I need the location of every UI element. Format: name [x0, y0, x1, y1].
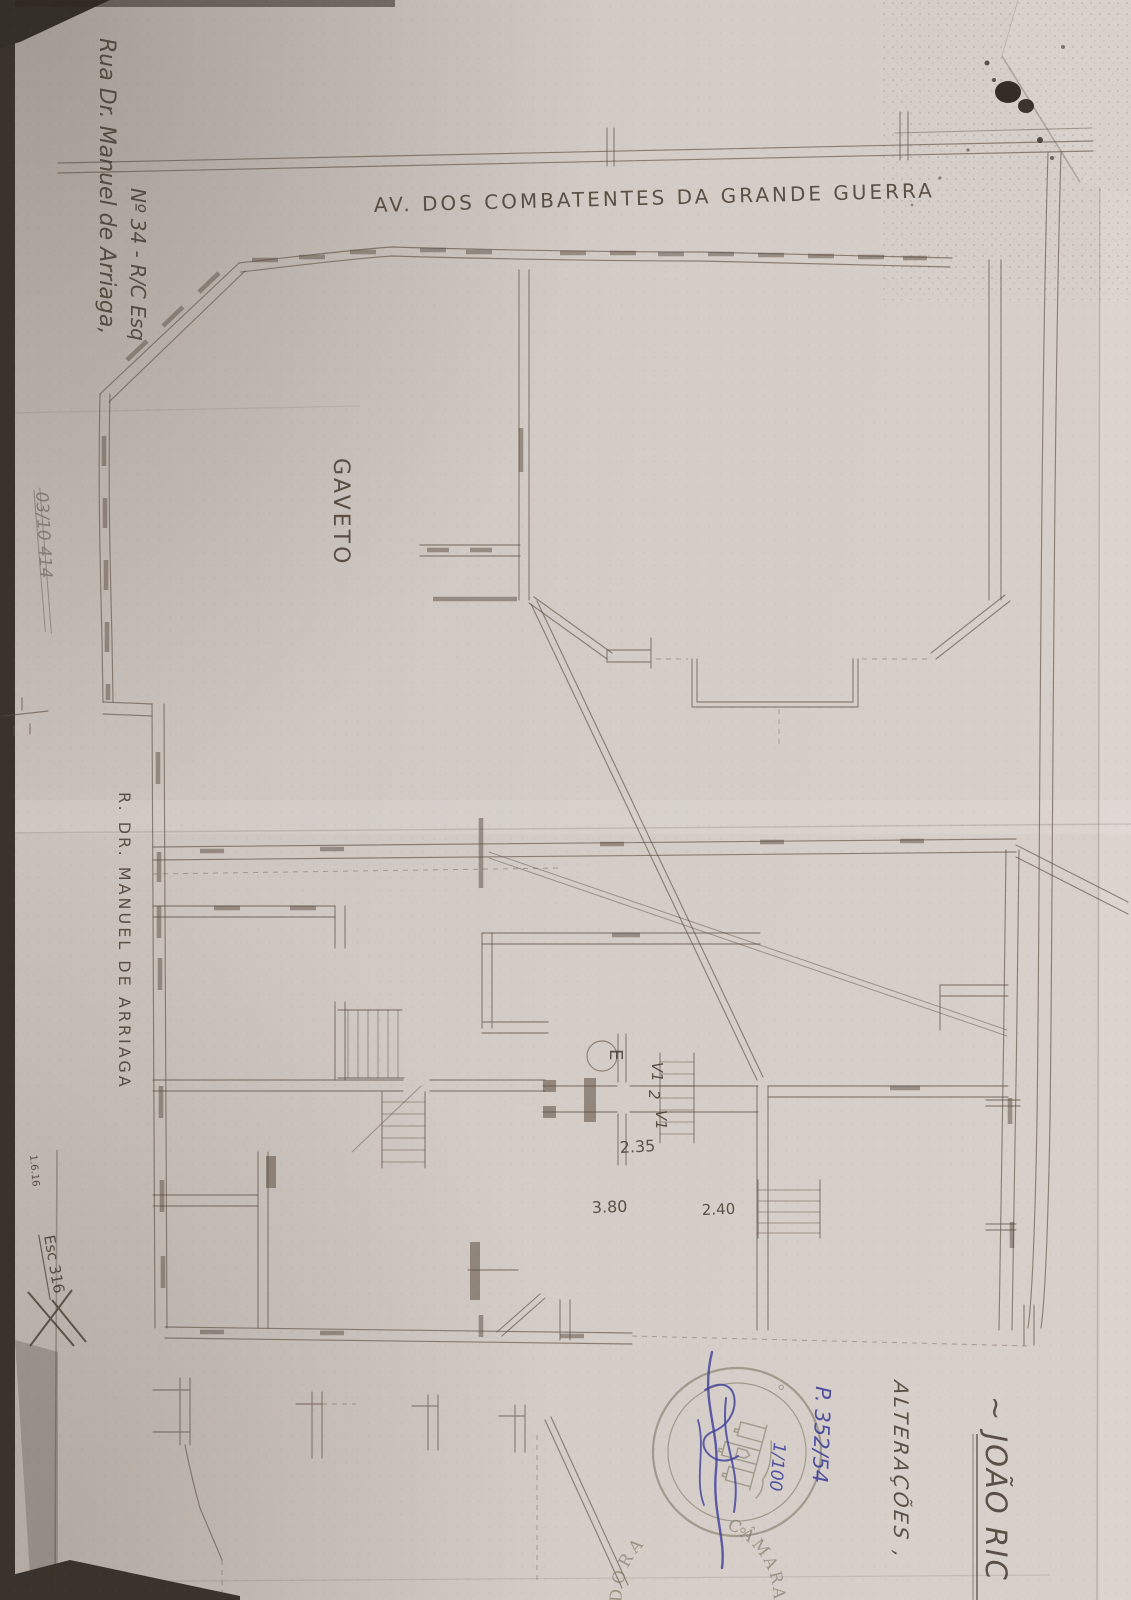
address-line-1: Rua Dr. Manuel de Arriaga, — [94, 38, 119, 334]
scale-note-blue: 1/100 — [765, 1442, 789, 1493]
label-v1-bottom: V1 — [652, 1110, 670, 1130]
paper — [0, 0, 1131, 1600]
gaveto-label: GAVETO — [328, 458, 353, 566]
scanned-plan-page: Rua Dr. Manuel de Arriaga, Nº 34 - R/C E… — [0, 0, 1131, 1600]
folded-corner — [880, 0, 1131, 300]
street-label: R. DR. MANUEL DE ARRIAGA — [115, 792, 134, 1090]
dimension-3-80: 3.80 — [591, 1197, 627, 1217]
label-mid: 2 — [645, 1090, 663, 1100]
label-entry: E — [605, 1049, 626, 1060]
svg-text:~ JOÃO RIC: ~ JOÃO RIC — [979, 1396, 1013, 1582]
address-line-2: Nº 34 - R/C Esq — [126, 188, 150, 341]
label-v1-top: V1 — [648, 1062, 666, 1082]
dimension-2-35: 2.35 — [619, 1136, 656, 1157]
process-number-note: P. 352/54 — [808, 1386, 835, 1484]
alterations-label: ALTERAÇÕES , — [889, 1377, 913, 1562]
dimension-2-40: 2.40 — [702, 1200, 736, 1219]
floor-plan-drawing: Rua Dr. Manuel de Arriaga, Nº 34 - R/C E… — [0, 0, 1131, 1600]
